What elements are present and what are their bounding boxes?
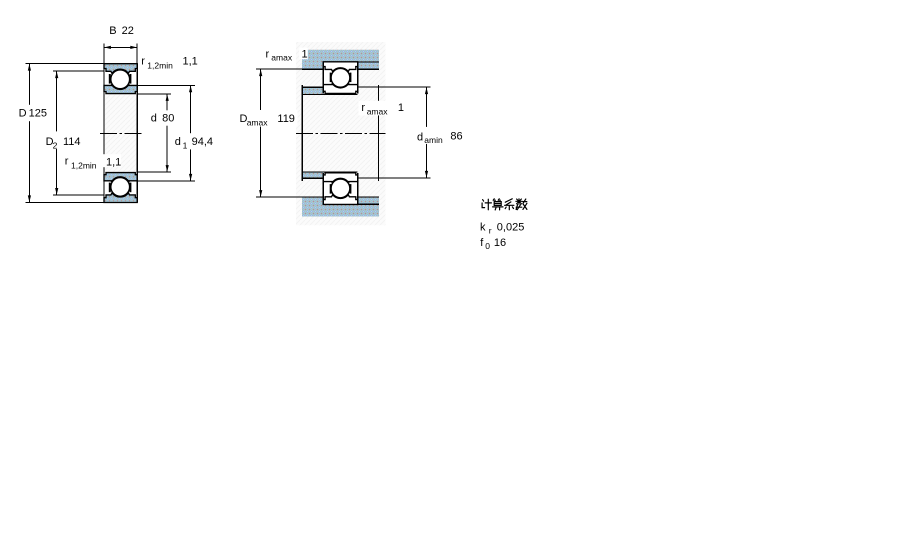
svg-text:94,4: 94,4	[192, 136, 213, 148]
svg-text:amax: amax	[367, 106, 389, 116]
svg-text:125: 125	[29, 107, 47, 119]
svg-text:80: 80	[162, 113, 174, 125]
svg-text:1: 1	[302, 49, 308, 61]
svg-text:r: r	[266, 49, 270, 61]
svg-text:1: 1	[183, 141, 188, 151]
svg-text:2: 2	[53, 141, 58, 151]
svg-text:0: 0	[485, 241, 490, 251]
svg-text:r: r	[489, 226, 492, 236]
svg-text:1: 1	[398, 102, 404, 114]
svg-text:22: 22	[122, 25, 134, 37]
svg-text:119: 119	[277, 113, 295, 125]
svg-text:1,2min: 1,2min	[71, 160, 97, 170]
svg-text:d: d	[175, 136, 181, 148]
svg-text:amax: amax	[271, 53, 293, 63]
svg-text:1,1: 1,1	[106, 156, 121, 168]
svg-text:amax: amax	[247, 118, 269, 128]
svg-text:d: d	[417, 131, 423, 143]
svg-text:1,2min: 1,2min	[147, 60, 173, 70]
svg-text:114: 114	[63, 136, 81, 148]
svg-text:amin: amin	[424, 135, 443, 145]
svg-text:r: r	[361, 102, 365, 114]
svg-text:1,1: 1,1	[183, 55, 198, 67]
svg-text:r: r	[65, 155, 69, 167]
svg-text:d: d	[151, 113, 157, 125]
svg-text:f: f	[480, 237, 484, 249]
svg-text:86: 86	[450, 131, 462, 143]
svg-text:D: D	[19, 107, 27, 119]
svg-text:0,025: 0,025	[497, 222, 525, 234]
svg-text:16: 16	[494, 237, 506, 249]
svg-text:B: B	[109, 25, 116, 37]
svg-text:k: k	[480, 222, 486, 234]
svg-text:r: r	[141, 55, 145, 67]
